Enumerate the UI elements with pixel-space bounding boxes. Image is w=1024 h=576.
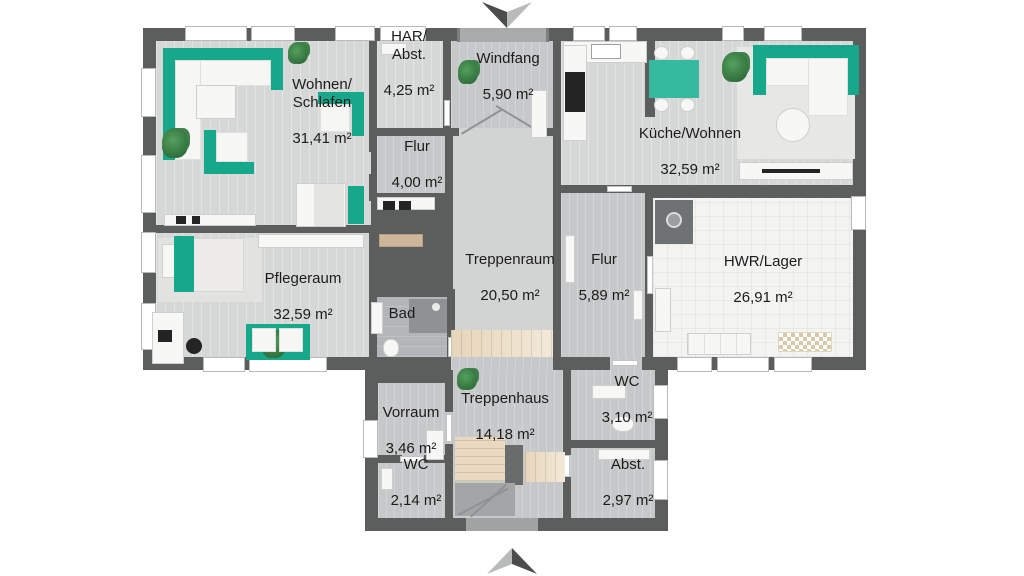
kitchen-sink: [591, 44, 621, 59]
room-name: Flur: [392, 138, 443, 156]
window: [653, 460, 668, 500]
door-leaf: [647, 256, 653, 294]
room-name: Küche/Wohnen: [639, 125, 741, 143]
room-name: HWR/Lager: [724, 253, 802, 271]
sofa: [271, 48, 283, 90]
window: [764, 26, 802, 41]
wall: [445, 370, 453, 412]
window: [141, 232, 156, 273]
room-label-kueche: Küche/Wohnen 32,59 m²: [639, 107, 741, 197]
room-label-bad: Bad: [389, 287, 416, 359]
decor: [176, 216, 186, 224]
window: [251, 26, 295, 41]
utility-counter: [655, 288, 671, 332]
wall: [563, 477, 571, 518]
room-name: Vorraum: [383, 404, 440, 422]
radiator: [633, 290, 643, 320]
room-name: Windfang: [476, 50, 539, 68]
round-table: [776, 108, 810, 142]
window: [717, 357, 769, 372]
window: [141, 155, 156, 213]
bed-blanket: [314, 184, 344, 226]
sofa: [753, 45, 766, 95]
dining-chair: [680, 46, 695, 60]
wall: [445, 174, 453, 193]
wall: [563, 370, 571, 440]
door-leaf: [446, 414, 452, 442]
room-area: 2,14 m²: [391, 492, 442, 510]
window: [722, 26, 744, 41]
room-name: HAR/ Abst.: [384, 28, 435, 64]
dining-table: [649, 60, 699, 98]
wall: [553, 41, 561, 136]
room-label-har: HAR/ Abst. 4,25 m²: [384, 10, 435, 118]
room-area: 3,10 m²: [602, 409, 653, 427]
bed-blanket: [174, 236, 194, 292]
wall: [369, 136, 377, 152]
doormat: [778, 332, 832, 352]
wood-bench: [379, 234, 423, 247]
room-area: 14,18 m²: [461, 426, 549, 444]
wall: [369, 233, 377, 297]
wall: [443, 41, 451, 98]
room-area: 4,00 m²: [392, 174, 443, 192]
room-label-wc-bottom: WC 2,14 m²: [391, 438, 442, 528]
window: [141, 68, 156, 117]
printer: [158, 330, 172, 342]
room-name: Treppenraum: [465, 251, 555, 269]
room-label-wohnen: Wohnen/ Schlafen 31,41 m²: [292, 58, 352, 166]
room-label-hwr: HWR/Lager 26,91 m²: [724, 235, 802, 325]
decor: [192, 216, 200, 224]
room-label-abstell: Abst. 2,97 m²: [603, 438, 654, 528]
room-area: 26,91 m²: [724, 289, 802, 307]
window: [774, 357, 812, 372]
door-leaf: [444, 100, 450, 126]
window: [653, 385, 668, 419]
window: [203, 357, 245, 372]
wall: [352, 225, 377, 233]
plant: [162, 128, 188, 158]
room-label-treppenhaus: Treppenhaus 14,18 m²: [461, 372, 549, 462]
room-area: 5,90 m²: [476, 86, 539, 104]
wall: [369, 41, 377, 128]
window: [185, 26, 247, 41]
shower-drain: [432, 303, 440, 311]
window: [573, 26, 605, 41]
window: [363, 420, 378, 458]
storage-shelf: [687, 333, 751, 355]
room-label-pflegeraum: Pflegeraum 32,59 m²: [265, 252, 342, 342]
floor-plan: Wohnen/ Schlafen 31,41 m² HAR/ Abst. 4,2…: [0, 0, 1024, 576]
room-label-flur1: Flur 4,00 m²: [392, 120, 443, 210]
window: [335, 26, 375, 41]
room-area: 20,50 m²: [465, 287, 555, 305]
entrance-arrow-top-icon: [482, 2, 532, 28]
room-area: 32,59 m²: [265, 306, 342, 324]
sofa: [163, 48, 283, 60]
stairs-upper: [451, 330, 553, 357]
room-label-wc-top: WC 3,10 m²: [602, 355, 653, 445]
room-name: Treppenhaus: [461, 390, 549, 408]
bedside-chair: [348, 186, 364, 224]
sofa: [753, 45, 859, 58]
plant: [722, 52, 748, 82]
wall: [645, 198, 653, 256]
room-name: Abst.: [603, 456, 654, 474]
room-name: Bad: [389, 305, 416, 323]
wall: [378, 370, 445, 383]
room-area: 2,97 m²: [603, 492, 654, 510]
window: [851, 196, 866, 230]
washing-machine-door: [666, 212, 682, 228]
dining-chair: [654, 46, 669, 60]
room-name: WC: [391, 456, 442, 474]
wall: [445, 136, 453, 152]
lower-entrance-door: [466, 518, 538, 531]
wall: [445, 193, 453, 297]
washbasin: [371, 302, 383, 334]
room-area: 31,41 m²: [292, 130, 352, 148]
room-name: Flur: [579, 251, 630, 269]
tv: [762, 169, 820, 173]
coffee-table: [196, 85, 236, 119]
sideboard: [258, 234, 364, 248]
room-name: Pflegeraum: [265, 270, 342, 288]
desk-chair: [186, 338, 202, 354]
wall: [561, 185, 607, 193]
window: [677, 357, 712, 372]
room-name: WC: [602, 373, 653, 391]
room-name: Wohnen/ Schlafen: [292, 76, 352, 112]
bed: [186, 238, 244, 292]
wall: [645, 294, 653, 357]
entrance-arrow-bottom-icon: [487, 548, 537, 574]
armchair-seat: [216, 132, 248, 162]
room-area: 32,59 m²: [639, 161, 741, 179]
wall: [369, 174, 377, 193]
window: [609, 26, 637, 41]
door-leaf: [607, 186, 632, 192]
plant: [458, 60, 478, 84]
room-label-flur2: Flur 5,89 m²: [579, 233, 630, 323]
room-area: 4,25 m²: [384, 82, 435, 100]
room-label-windfang: Windfang 5,90 m²: [476, 32, 539, 122]
radiator: [565, 235, 575, 283]
room-label-treppenraum: Treppenraum 20,50 m²: [465, 233, 555, 323]
chaise: [808, 58, 848, 116]
room-area: 5,89 m²: [579, 287, 630, 305]
armchair: [352, 92, 364, 136]
armchair: [204, 162, 254, 174]
stove: [565, 72, 585, 112]
